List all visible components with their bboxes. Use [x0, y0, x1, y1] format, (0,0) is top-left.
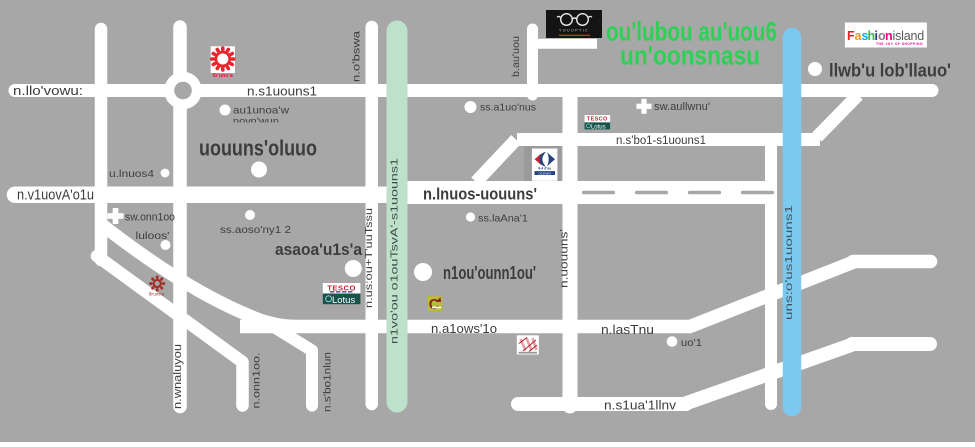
svg-text:n.us:ou+T'uuTssu: n.us:ou+T'uuTssu [364, 208, 375, 308]
svg-text:n.a1ows'1o: n.a1ows'1o [431, 322, 497, 336]
svg-text:n.llo'vowu:: n.llo'vowu: [13, 84, 83, 98]
svg-text:n.uouuns': n.uouuns' [559, 229, 571, 288]
svg-text:TESCO: TESCO [587, 117, 608, 123]
svg-text:n.s1ua'1llnv: n.s1ua'1llnv [604, 398, 677, 413]
svg-text:n.onn1oo.: n.onn1oo. [251, 353, 263, 409]
svg-text:n.s'bo1-s1uouns1: n.s'bo1-s1uouns1 [616, 135, 706, 147]
svg-text:u.lnuos4: u.lnuos4 [109, 168, 154, 180]
svg-text:n.wnaluyou: n.wnaluyou [172, 344, 184, 409]
svg-text:Lotus: Lotus [591, 124, 606, 130]
svg-text:uouuns'oluuo: uouuns'oluuo [199, 136, 317, 161]
svg-text:YOUOPTIC: YOUOPTIC [559, 29, 589, 33]
svg-text:n.s1uouns1: n.s1uouns1 [247, 85, 317, 99]
svg-text:ss.a1uo'nus: ss.a1uo'nus [480, 102, 536, 114]
svg-text:sw.aullwnu': sw.aullwnu' [654, 101, 710, 113]
svg-text:O1S!W!S: O1S!W!S [539, 171, 552, 175]
svg-text:n1vo'ou o1ouTsvA'-s1uouns1: n1vo'ou o1ouTsvA'-s1uouns1 [390, 157, 401, 344]
svg-text:uns:o'us1uouns1: uns:o'us1uouns1 [783, 205, 795, 320]
svg-text:n1ou'ounn1ou': n1ou'ounn1ou' [443, 263, 536, 283]
svg-text:b.au'uou: b.au'uou [511, 36, 522, 77]
svg-text:6-4 d'ou: 6-4 d'ou [538, 167, 551, 171]
svg-text:n.o'bswa: n.o'bswa [352, 30, 363, 82]
svg-text:Lotus: Lotus [332, 295, 355, 306]
svg-text:lb'uns'a: lb'uns'a [213, 73, 234, 79]
svg-text:lb'uns'a: lb'uns'a [149, 292, 164, 297]
svg-text:C: C [429, 297, 440, 313]
svg-text:llwb'u lob'llauo': llwb'u lob'llauo' [829, 61, 951, 81]
svg-text:THE JOY OF SHOPPING: THE JOY OF SHOPPING [876, 42, 923, 46]
svg-text:n.v1uovA'o1u: n.v1uovA'o1u [17, 188, 94, 204]
svg-text:ss.aoso'ny1 2: ss.aoso'ny1 2 [220, 224, 291, 236]
svg-text:n.lnuos-uouuns': n.lnuos-uouuns' [423, 185, 537, 204]
svg-text:n.lasTnu: n.lasTnu [601, 323, 654, 337]
svg-text:asaoa'u1s'a: asaoa'u1s'a [275, 241, 363, 259]
svg-text:uo'1: uo'1 [681, 337, 702, 349]
svg-text:ss.laAna'1: ss.laAna'1 [478, 213, 528, 225]
svg-text:n.s'bo1nlun: n.s'bo1nlun [322, 352, 334, 412]
svg-text:un'oonsnasu: un'oonsnasu [620, 41, 760, 71]
svg-text:sw.onn1oo: sw.onn1oo [125, 212, 175, 224]
